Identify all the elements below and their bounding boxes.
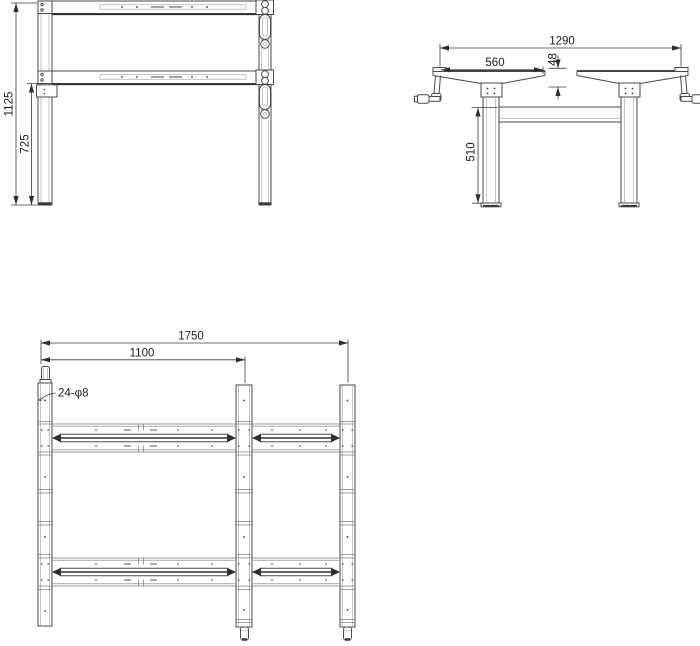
dimension-plan-beam-length: 1100 bbox=[41, 348, 245, 384]
dim-side-top-bracket-width-label: 560 bbox=[485, 57, 504, 69]
side-right-leg bbox=[619, 97, 639, 207]
front-view: 1125 725 bbox=[4, 0, 274, 205]
side-left-desktop bbox=[433, 71, 545, 84]
drawing-canvas: 1125 725 bbox=[0, 0, 700, 646]
rail-foot bbox=[241, 627, 249, 641]
dimension-side-overall-width: 1290 bbox=[440, 36, 681, 67]
front-left-leg bbox=[38, 12, 52, 205]
dim-front-total-height-label: 1125 bbox=[4, 92, 16, 117]
front-lower-beam bbox=[38, 70, 274, 118]
side-view: 1290 560 48 510 bbox=[415, 36, 700, 207]
dim-plan-overall-length-label: 1750 bbox=[178, 331, 204, 343]
dimension-front-total-height: 1125 bbox=[4, 3, 38, 205]
front-leg-bracket bbox=[37, 85, 58, 97]
plan-view: 1750 1100 24-φ8 bbox=[38, 331, 355, 641]
side-left-bracket bbox=[481, 83, 502, 97]
technical-drawing-svg: 1125 725 bbox=[0, 0, 700, 646]
rail-foot bbox=[344, 627, 352, 641]
hole-callout-label: 24-φ8 bbox=[58, 388, 88, 400]
plan-lower-beam bbox=[52, 558, 340, 586]
plan-upper-beam bbox=[52, 424, 340, 452]
dim-front-frame-height-label: 725 bbox=[20, 134, 32, 153]
side-right-bracket bbox=[619, 83, 640, 97]
crank-hub bbox=[256, 70, 274, 85]
dim-side-overall-width-label: 1290 bbox=[549, 36, 575, 48]
side-left-leg bbox=[481, 97, 501, 207]
dimension-side-top-offset: 48 bbox=[548, 53, 567, 99]
front-right-foot bbox=[259, 202, 270, 205]
dim-side-top-offset-label: 48 bbox=[548, 53, 560, 66]
crank-capsule bbox=[260, 85, 271, 119]
crank-hub bbox=[256, 0, 274, 15]
side-right-desktop bbox=[577, 71, 688, 84]
crank-capsule bbox=[260, 15, 271, 49]
plan-right-rail bbox=[340, 385, 355, 641]
front-left-foot bbox=[39, 202, 52, 205]
front-upper-beam bbox=[38, 0, 274, 48]
side-cross-beam bbox=[499, 107, 621, 122]
plan-left-rail bbox=[38, 367, 52, 627]
dim-plan-beam-length-label: 1100 bbox=[130, 348, 155, 360]
dimension-plan-overall-length: 1750 bbox=[41, 331, 348, 383]
left-crank-handle bbox=[415, 68, 447, 104]
dim-side-leg-height-label: 510 bbox=[466, 142, 478, 161]
plan-middle-rail bbox=[236, 385, 252, 641]
